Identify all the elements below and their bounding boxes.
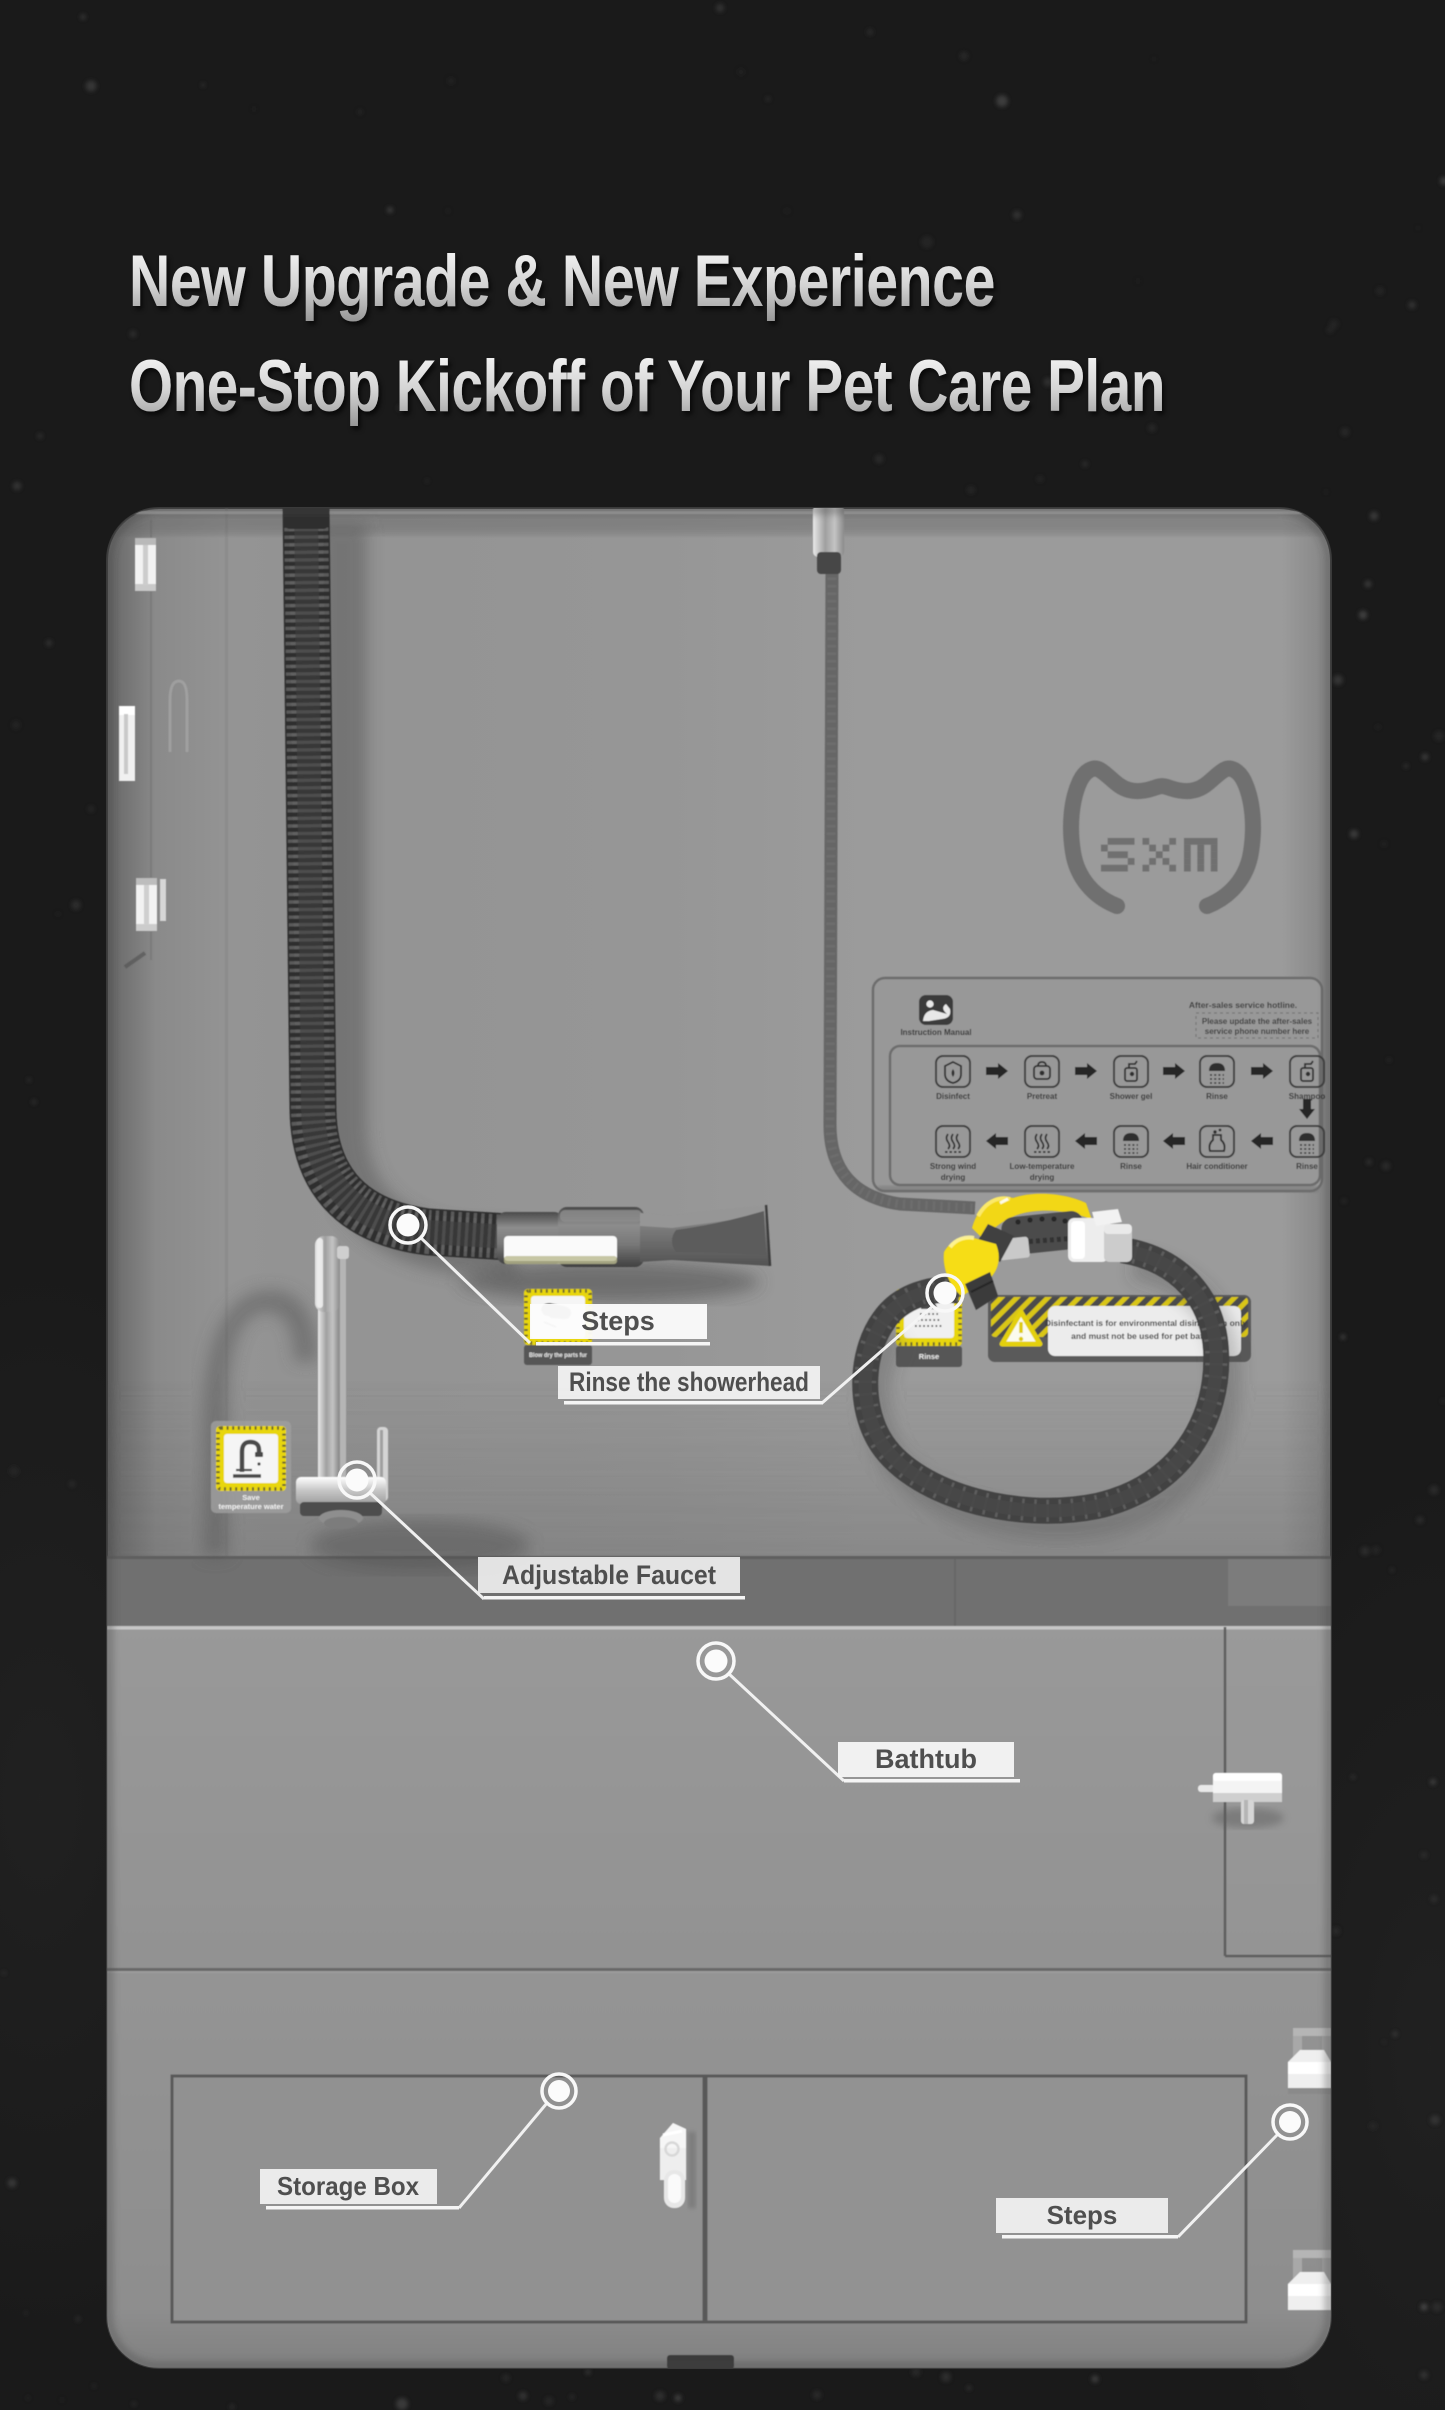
svg-text:Please update the after-sales: Please update the after-sales xyxy=(1202,1017,1313,1026)
svg-text:drying: drying xyxy=(941,1173,966,1182)
svg-text:Instruction Manual: Instruction Manual xyxy=(900,1028,971,1037)
svg-text:Storage Box: Storage Box xyxy=(277,2171,419,2201)
svg-text:Rinse: Rinse xyxy=(1296,1162,1318,1171)
svg-text:Disinfect: Disinfect xyxy=(936,1092,970,1101)
svg-text:Bathtub: Bathtub xyxy=(875,1744,977,1774)
svg-text:Rinse: Rinse xyxy=(919,1352,939,1361)
svg-text:Rinse: Rinse xyxy=(1206,1092,1228,1101)
svg-text:Save: Save xyxy=(242,1493,260,1502)
svg-text:Strong wind: Strong wind xyxy=(930,1162,976,1171)
svg-text:After-sales service hotline.: After-sales service hotline. xyxy=(1189,1000,1297,1010)
svg-text:Rinse the showerhead: Rinse the showerhead xyxy=(569,1367,809,1397)
svg-text:Steps: Steps xyxy=(581,1306,655,1336)
svg-text:service phone number here: service phone number here xyxy=(1205,1027,1310,1036)
svg-text:Shower gel: Shower gel xyxy=(1110,1092,1153,1101)
svg-text:Adjustable Faucet: Adjustable Faucet xyxy=(502,1560,716,1590)
svg-text:Blow dry the parts fur: Blow dry the parts fur xyxy=(529,1352,587,1359)
svg-text:Hair conditioner: Hair conditioner xyxy=(1186,1162,1247,1171)
svg-text:Rinse: Rinse xyxy=(1120,1162,1142,1171)
svg-text:Low-temperature: Low-temperature xyxy=(1010,1162,1075,1171)
svg-text:drying: drying xyxy=(1030,1173,1055,1182)
svg-text:Steps: Steps xyxy=(1047,2200,1118,2230)
svg-text:One-Stop Kickoff of Your Pet C: One-Stop Kickoff of Your Pet Care Plan xyxy=(129,346,1165,427)
svg-text:and must not be used for pet b: and must not be used for pet bathing xyxy=(1071,1331,1221,1341)
svg-text:New Upgrade & New Experience: New Upgrade & New Experience xyxy=(129,241,995,322)
svg-text:temperature water: temperature water xyxy=(218,1502,283,1511)
svg-text:Pretreat: Pretreat xyxy=(1027,1092,1058,1101)
